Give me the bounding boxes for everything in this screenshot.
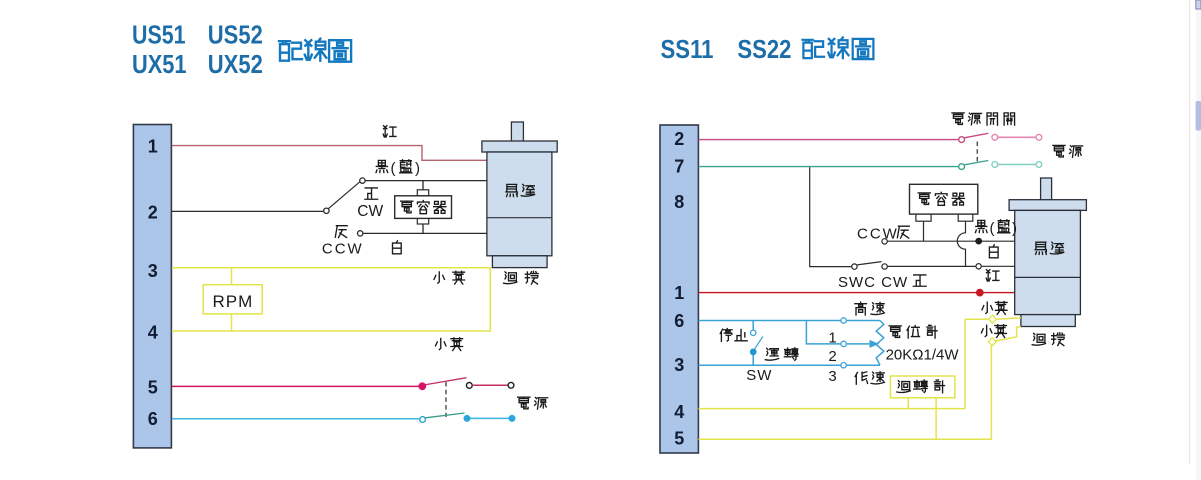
svg-text:2: 2 [674, 129, 684, 149]
svg-text:3: 3 [148, 261, 158, 281]
svg-text:CCW: CCW [857, 226, 899, 243]
svg-text:UX52: UX52 [208, 49, 263, 79]
svg-text:7: 7 [674, 157, 684, 177]
svg-text:5: 5 [148, 378, 158, 398]
svg-text:(: ( [391, 160, 396, 177]
svg-text:3: 3 [828, 368, 836, 385]
svg-text:(: ( [990, 220, 995, 237]
svg-text:4: 4 [674, 402, 684, 422]
svg-text:CW: CW [357, 203, 383, 220]
svg-text:): ) [415, 160, 420, 177]
svg-text:8: 8 [674, 192, 684, 212]
svg-text:6: 6 [148, 409, 158, 429]
svg-text:3: 3 [674, 355, 684, 375]
svg-text:5: 5 [674, 429, 684, 449]
svg-text:US52: US52 [208, 19, 263, 49]
svg-text:SS22: SS22 [737, 34, 791, 64]
svg-text:1: 1 [674, 283, 684, 303]
svg-text:2: 2 [828, 348, 836, 365]
svg-text:20KΩ1/4W: 20KΩ1/4W [886, 347, 960, 364]
svg-text:1: 1 [148, 136, 158, 156]
svg-text:2: 2 [148, 203, 158, 223]
svg-text:): ) [1012, 220, 1017, 237]
svg-text:CCW: CCW [322, 241, 364, 258]
svg-text:UX51: UX51 [132, 49, 187, 79]
svg-text:US51: US51 [132, 19, 186, 49]
svg-text:4: 4 [148, 323, 158, 343]
svg-text:SS11: SS11 [661, 34, 714, 64]
svg-text:SW: SW [746, 367, 772, 384]
svg-text:1: 1 [828, 330, 836, 347]
svg-text:SWC CW: SWC CW [838, 274, 908, 291]
svg-text:RPM: RPM [213, 292, 254, 311]
svg-text:6: 6 [674, 311, 684, 331]
